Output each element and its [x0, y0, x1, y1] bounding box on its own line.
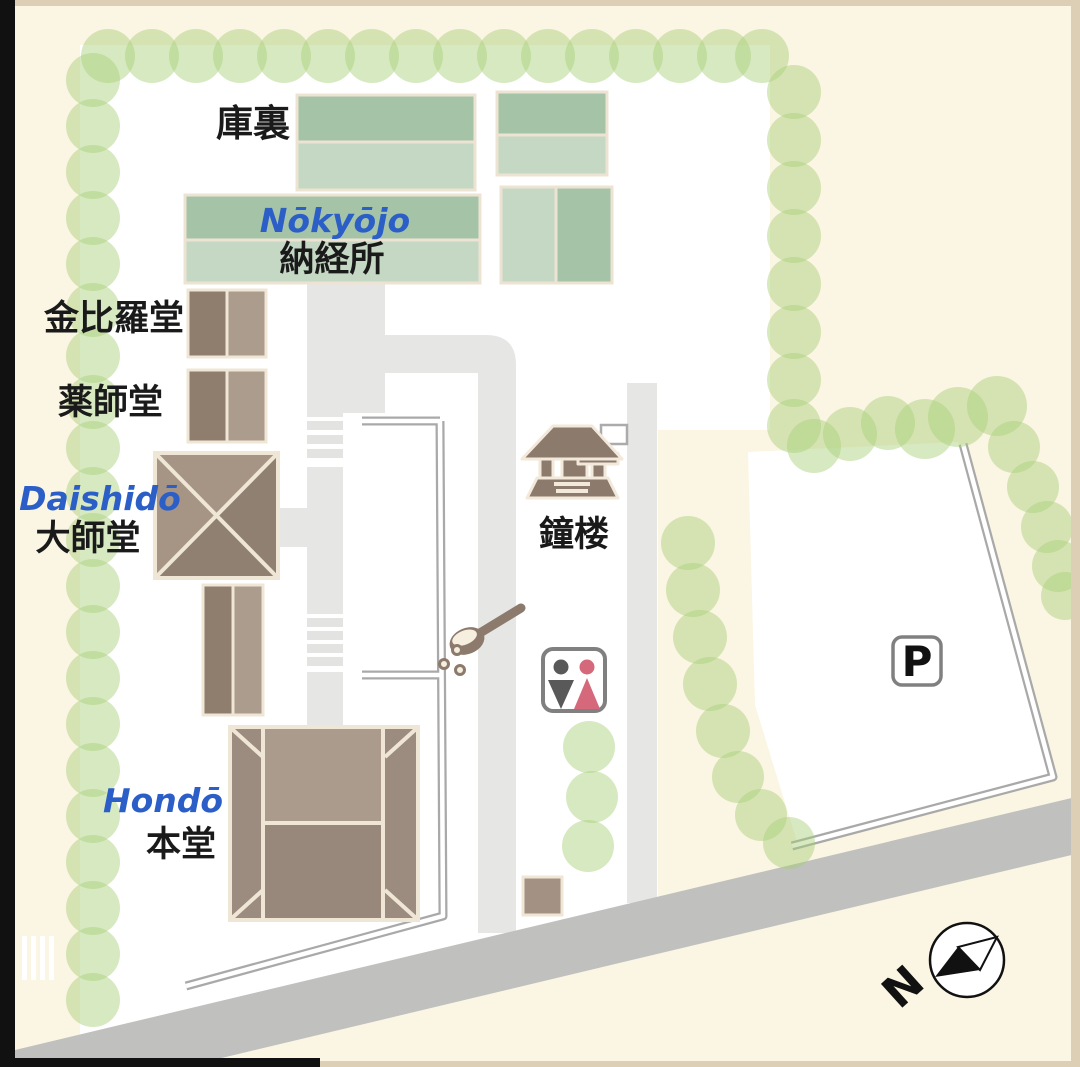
kuri-building [297, 95, 475, 190]
outbuilding-east [501, 187, 612, 283]
small-storehouse [523, 877, 562, 915]
temple-grounds-map: P N [0, 0, 1080, 1067]
hall-south-of-daishido [203, 585, 263, 715]
konpirado-label: 金比羅堂 [43, 298, 184, 339]
shoro-label: 鐘楼 [539, 514, 609, 555]
toilet-icon [543, 649, 605, 711]
outbuilding-northeast [497, 92, 607, 175]
kuri-label: 庫裏 [216, 102, 291, 145]
daishido-romaji-label: Daishidō [19, 479, 181, 518]
hondo-building [230, 727, 418, 920]
yakushido-building [188, 370, 266, 442]
daishido-label: 大師堂 [35, 519, 140, 559]
nokyojo-label: 納経所 [279, 240, 384, 280]
parking-label: P [902, 637, 933, 686]
yakushido-label: 薬師堂 [58, 383, 163, 423]
nokyojo-romaji-label: Nōkyōjo [260, 201, 410, 240]
hondo-label: 本堂 [146, 825, 216, 865]
hondo-romaji-label: Hondō [103, 781, 223, 820]
konpirado-building [188, 290, 266, 357]
parking-icon: P [893, 637, 941, 686]
